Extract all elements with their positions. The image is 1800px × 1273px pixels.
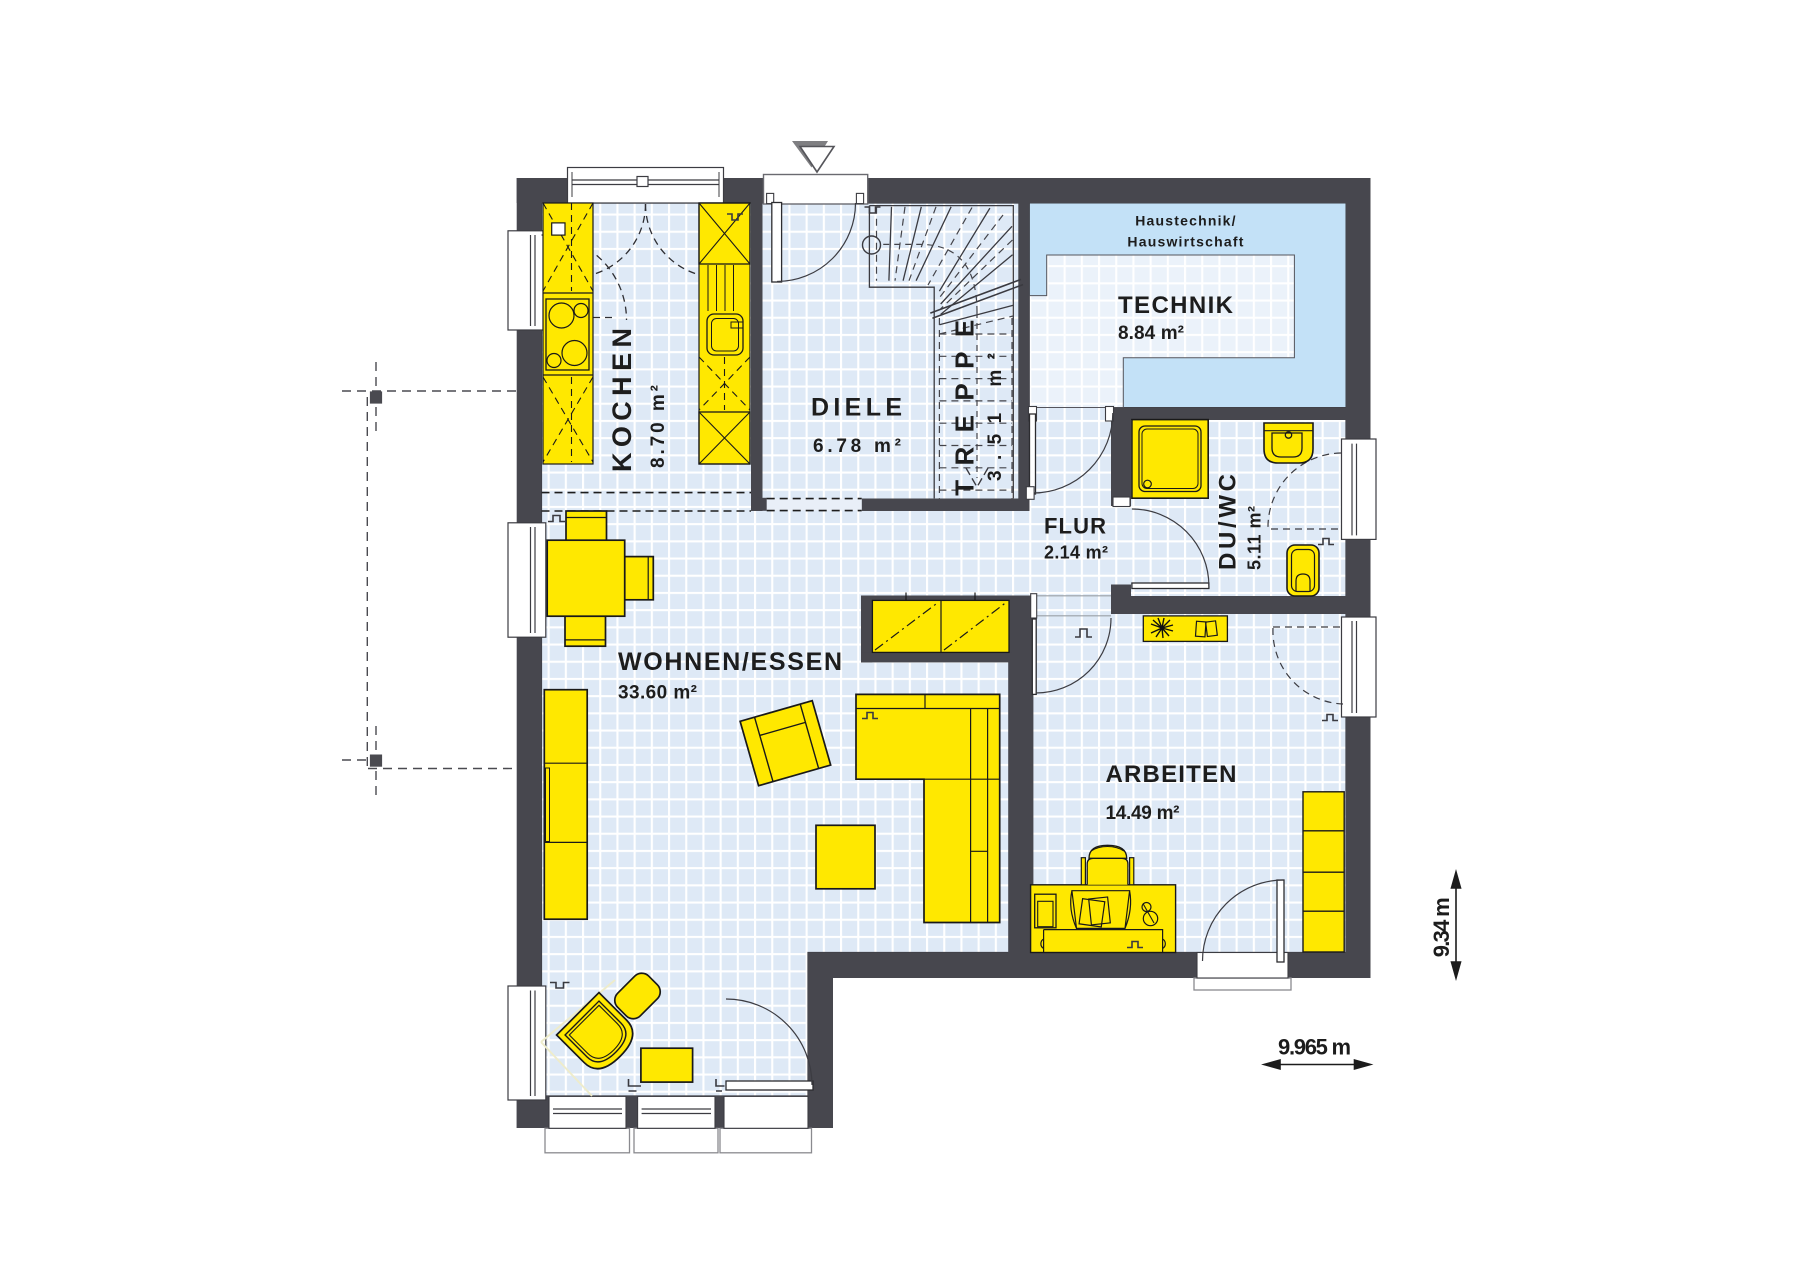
svg-text:9.34 m: 9.34 m — [1429, 897, 1454, 957]
svg-text:TECHNIK: TECHNIK — [1118, 292, 1234, 319]
svg-text:WOHNEN/ESSEN: WOHNEN/ESSEN — [618, 648, 842, 676]
svg-text:14.49 m²: 14.49 m² — [1106, 803, 1180, 824]
svg-text:8.84 m²: 8.84 m² — [1118, 323, 1184, 344]
svg-text:ARBEITEN: ARBEITEN — [1106, 761, 1237, 788]
svg-text:FLUR: FLUR — [1044, 514, 1106, 539]
svg-text:Haustechnik/: Haustechnik/ — [1135, 213, 1237, 229]
svg-text:5.11 m²: 5.11 m² — [1245, 506, 1265, 570]
svg-text:DIELE: DIELE — [811, 394, 902, 422]
svg-text:Hauswirtschaft: Hauswirtschaft — [1127, 234, 1244, 250]
svg-text:2.14 m²: 2.14 m² — [1044, 543, 1108, 563]
svg-text:9.965 m: 9.965 m — [1278, 1035, 1351, 1060]
svg-text:DU/WC: DU/WC — [1215, 474, 1242, 570]
svg-text:33.60 m²: 33.60 m² — [618, 683, 697, 704]
